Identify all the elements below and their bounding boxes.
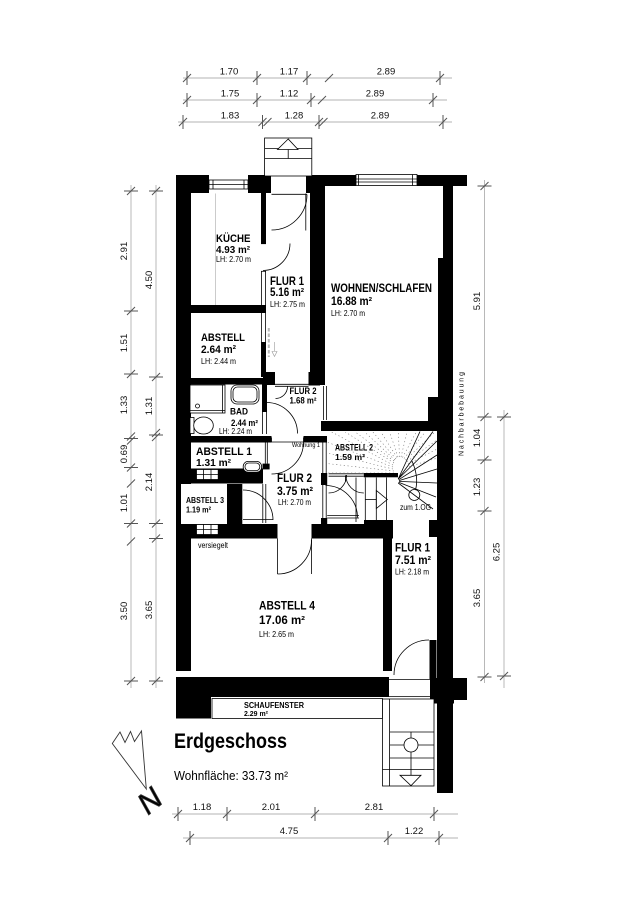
svg-text:5.91: 5.91 (472, 292, 483, 311)
svg-text:3.65: 3.65 (472, 589, 483, 608)
svg-text:17.06 m²: 17.06 m² (259, 615, 305, 627)
svg-text:ABSTELL 3: ABSTELL 3 (186, 495, 224, 505)
svg-text:2.64 m²: 2.64 m² (201, 344, 236, 356)
svg-text:2.89: 2.89 (366, 89, 385, 100)
svg-text:1.33: 1.33 (119, 396, 130, 415)
svg-text:LH: 2.44 m: LH: 2.44 m (201, 356, 236, 366)
svg-text:1.28: 1.28 (285, 111, 304, 122)
svg-text:5.16 m²: 5.16 m² (270, 287, 304, 299)
svg-text:LH: 2.70 m: LH: 2.70 m (278, 497, 311, 507)
svg-text:1.22: 1.22 (405, 826, 424, 837)
svg-text:LH: 2.18 m: LH: 2.18 m (395, 567, 429, 577)
svg-text:2.29 m²: 2.29 m² (244, 709, 268, 718)
svg-text:FLUR 2: FLUR 2 (277, 471, 312, 485)
svg-text:zum 1.OG: zum 1.OG (400, 503, 431, 512)
svg-text:2.01: 2.01 (262, 802, 281, 813)
svg-text:BAD: BAD (230, 407, 248, 418)
svg-text:1.68 m²: 1.68 m² (290, 396, 317, 406)
svg-text:1.31 m²: 1.31 m² (196, 457, 231, 469)
svg-text:1.04: 1.04 (472, 429, 483, 448)
svg-text:WOHNEN/SCHLAFEN: WOHNEN/SCHLAFEN (331, 281, 432, 295)
svg-text:LH: 2.65 m: LH: 2.65 m (259, 629, 294, 639)
svg-text:FLUR 1: FLUR 1 (395, 543, 431, 555)
svg-text:3.50: 3.50 (119, 602, 130, 621)
svg-text:1.19 m²: 1.19 m² (186, 505, 211, 515)
svg-text:1.70: 1.70 (220, 67, 239, 78)
svg-text:1.23: 1.23 (472, 478, 483, 497)
svg-text:3.65: 3.65 (144, 601, 155, 620)
svg-text:ABSTELL: ABSTELL (201, 332, 245, 344)
svg-text:versiegelt: versiegelt (198, 541, 229, 550)
svg-text:4.50: 4.50 (144, 271, 155, 290)
svg-text:Erdgeschoss: Erdgeschoss (174, 729, 287, 753)
svg-text:2.89: 2.89 (377, 67, 396, 78)
svg-text:1.31: 1.31 (144, 397, 155, 416)
svg-text:LH: 2.70 m: LH: 2.70 m (216, 254, 251, 264)
svg-text:LH: 2.24 m: LH: 2.24 m (219, 427, 252, 436)
svg-text:2.91: 2.91 (119, 242, 130, 261)
svg-text:7.51 m²: 7.51 m² (395, 555, 431, 567)
svg-text:Nachbarbebauung: Nachbarbebauung (459, 372, 466, 456)
svg-text:1.17: 1.17 (280, 67, 299, 78)
svg-text:2.89: 2.89 (371, 111, 390, 122)
svg-text:LH: 2.70 m: LH: 2.70 m (331, 308, 365, 318)
svg-text:4.75: 4.75 (280, 826, 299, 837)
svg-text:1.01: 1.01 (119, 494, 130, 513)
svg-text:2.81: 2.81 (365, 802, 384, 813)
svg-text:1.83: 1.83 (221, 111, 240, 122)
svg-text:0.69: 0.69 (119, 445, 130, 464)
svg-text:LH: 2.75 m: LH: 2.75 m (270, 299, 305, 309)
svg-text:1.59 m²: 1.59 m² (335, 452, 365, 462)
svg-text:1.51: 1.51 (119, 334, 130, 353)
svg-text:ABSTELL 4: ABSTELL 4 (259, 601, 316, 613)
svg-text:Wohnung 1: Wohnung 1 (292, 442, 320, 449)
svg-text:ABSTELL 2: ABSTELL 2 (335, 443, 373, 453)
svg-text:1.12: 1.12 (280, 89, 299, 100)
svg-text:1.75: 1.75 (221, 89, 240, 100)
svg-text:3.75 m²: 3.75 m² (277, 484, 313, 498)
svg-text:2.14: 2.14 (144, 473, 155, 492)
svg-text:16.88 m²: 16.88 m² (331, 296, 372, 308)
svg-text:6.25: 6.25 (492, 543, 503, 562)
svg-text:1.18: 1.18 (193, 802, 212, 813)
svg-text:Wohnfläche: 33.73 m²: Wohnfläche: 33.73 m² (174, 769, 288, 783)
